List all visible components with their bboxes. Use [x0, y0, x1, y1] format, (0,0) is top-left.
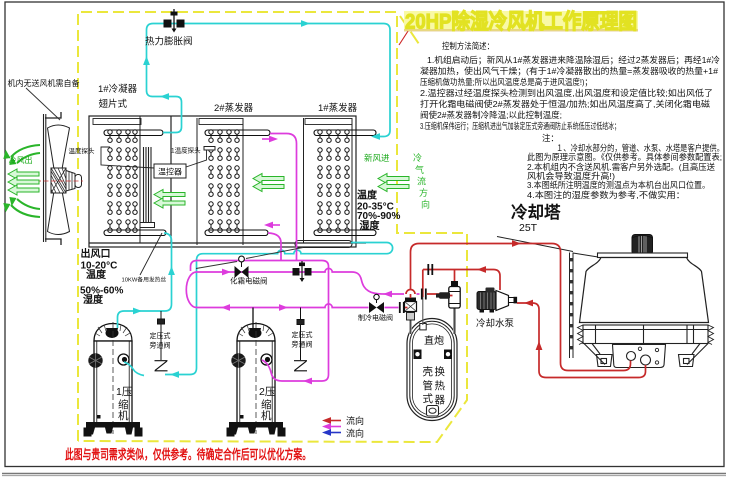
svg-text:3.压缩机保伟运行；压缩机进出气加装定压式旁通阀防止系统低压: 3.压缩机保伟运行；压缩机进出气加装定压式旁通阀防止系统低压过低结冰；: [420, 121, 620, 131]
svg-text:翅片式: 翅片式: [99, 98, 128, 110]
svg-text:2#蒸发器: 2#蒸发器: [214, 102, 254, 114]
svg-text:此图与贵司需求类似，仅供参考。待确定合作后可以优化方案。: 此图与贵司需求类似，仅供参考。待确定合作后可以优化方案。: [65, 447, 311, 462]
svg-text:定压式: 定压式: [150, 331, 171, 340]
svg-text:湿度: 湿度: [83, 293, 104, 306]
svg-text:制冷电磁阀: 制冷电磁阀: [358, 313, 393, 322]
svg-text:1温度探头: 1温度探头: [171, 146, 201, 155]
svg-text:阀使2#蒸发器制冷降温;以此控制温度;: 阀使2#蒸发器制冷降温;以此控制温度;: [420, 110, 562, 120]
svg-text:20HP除湿冷风机工作原理图: 20HP除湿冷风机工作原理图: [405, 10, 637, 34]
svg-text:1.机组启动后；新风从1#蒸发器进来降温除湿后；经过2蒸发器: 1.机组启动后；新风从1#蒸发器进来降温除湿后；经过2蒸发器后；再经1#冷: [427, 55, 720, 65]
svg-text:1#冷凝器: 1#冷凝器: [98, 83, 138, 95]
svg-text:冷却水泵: 冷却水泵: [476, 318, 515, 330]
svg-text:流向: 流向: [346, 415, 364, 426]
svg-text:机: 机: [118, 409, 129, 422]
svg-text:式: 式: [423, 392, 434, 405]
svg-text:直炮: 直炮: [424, 334, 444, 347]
svg-text:冷: 冷: [413, 152, 422, 163]
svg-text:方: 方: [419, 187, 428, 198]
svg-text:热力膨胀阀: 热力膨胀阀: [145, 36, 193, 48]
svg-text:器: 器: [435, 394, 446, 406]
svg-text:10KW备用发热丝: 10KW备用发热丝: [122, 276, 167, 284]
svg-text:控制方法简述：: 控制方法简述：: [442, 41, 494, 51]
svg-text:气: 气: [415, 164, 424, 175]
svg-text:管: 管: [423, 379, 434, 392]
svg-text:25T: 25T: [519, 222, 538, 234]
svg-text:化霜电磁阀: 化霜电磁阀: [230, 276, 268, 286]
svg-text:此图为原理示意图。《仅供参考。具体参间参数配置表;: 此图为原理示意图。《仅供参考。具体参间参数配置表;: [527, 152, 722, 162]
svg-text:注：: 注：: [542, 133, 559, 143]
svg-text:温控器: 温控器: [158, 167, 182, 177]
svg-text:凝器加热，使出风气干燥；(有于1#冷凝器散出的热量=蒸发器吸: 凝器加热，使出风气干燥；(有于1#冷凝器散出的热量=蒸发器吸收的热量+1#: [420, 66, 718, 76]
svg-text:2压: 2压: [259, 386, 276, 398]
svg-text:打开化霜电磁阀使2#蒸发器处于恒温/加热;如出风温度高了,关: 打开化霜电磁阀使2#蒸发器处于恒温/加热;如出风温度高了,关闭化霜电磁: [420, 99, 711, 109]
svg-text:流向: 流向: [346, 428, 364, 439]
svg-text:热: 热: [435, 379, 446, 392]
svg-text:新风进: 新风进: [364, 153, 390, 163]
svg-text:机内无送风机需自备: 机内无送风机需自备: [8, 78, 80, 88]
svg-text:出风口: 出风口: [81, 247, 111, 260]
svg-text:湿度: 湿度: [360, 219, 381, 232]
svg-text:换: 换: [435, 365, 446, 378]
svg-text:温度探头: 温度探头: [69, 146, 96, 155]
svg-text:流: 流: [417, 176, 426, 187]
svg-text:旁通阀: 旁通阀: [150, 341, 171, 350]
svg-text:1压: 1压: [116, 386, 133, 398]
svg-text:2.温控器过经温度探头检测到出风温度,出风温度和设定值比较;: 2.温控器过经温度探头检测到出风温度,出风温度和设定值比较;如出风低了: [420, 88, 713, 98]
svg-text:温度: 温度: [357, 189, 378, 202]
svg-text:冷却塔: 冷却塔: [511, 202, 561, 222]
svg-text:壳: 壳: [423, 365, 434, 378]
svg-text:4.本图注的湿度参数为参考,不做实用：: 4.本图注的湿度参数为参考,不做实用：: [527, 190, 685, 200]
svg-text:定压式: 定压式: [292, 330, 313, 339]
svg-text:冷风出: 冷风出: [9, 155, 33, 165]
svg-text:1#蒸发器: 1#蒸发器: [318, 102, 358, 114]
svg-text:向: 向: [421, 199, 430, 210]
svg-text:压缩机做功热量;所以出风温度总是高于进风温度!)；: 压缩机做功热量;所以出风温度总是高于进风温度!)；: [420, 77, 592, 87]
svg-text:3.本图纸所注明温度的测温点为本机台出风口位置。: 3.本图纸所注明温度的测温点为本机台出风口位置。: [527, 180, 710, 190]
svg-text:机: 机: [261, 409, 272, 422]
svg-text:旁通阀: 旁通阀: [292, 340, 313, 349]
svg-text:温度: 温度: [86, 268, 107, 281]
